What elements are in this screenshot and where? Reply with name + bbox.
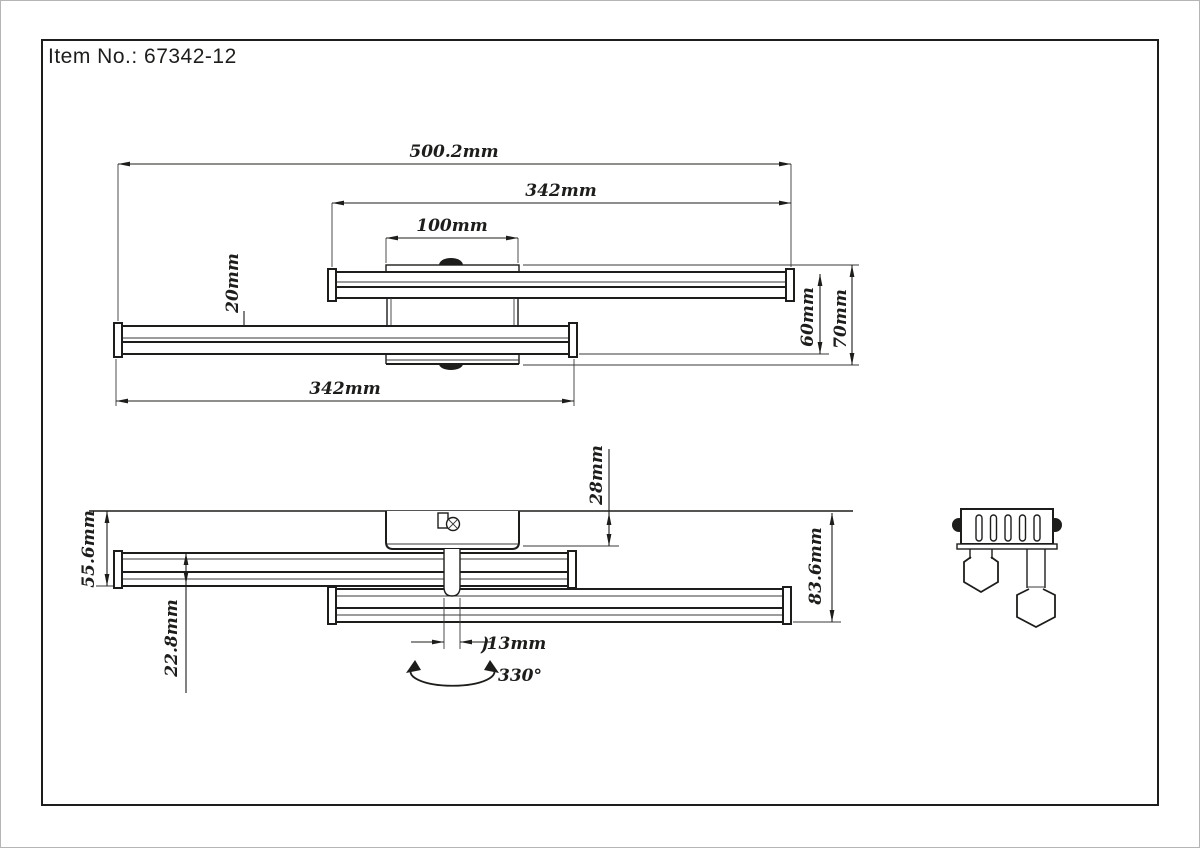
dim-lower-bar-length: 342mm bbox=[309, 379, 380, 399]
top-view: 500.2mm 342mm 100mm 20mm 60mm 70mm 342mm bbox=[114, 142, 859, 406]
rotation-arrow-left bbox=[406, 660, 421, 673]
end-view bbox=[952, 509, 1062, 627]
side-view: 55.6mm 22.8mm 28mm 83.6mm ⦘13mm bbox=[79, 445, 853, 693]
dim-height-to-first-bar: 55.6mm bbox=[79, 510, 99, 587]
drawing-page: Item No.: 67342-12 bbox=[0, 0, 1200, 848]
dim-upper-bar-length: 342mm bbox=[525, 181, 596, 201]
dim-swivel-angle: 330° bbox=[498, 666, 542, 686]
dim-bar-profile-height: 22.8mm bbox=[162, 599, 182, 677]
dim-overall-width: 500.2mm bbox=[409, 142, 498, 162]
dim-canopy-drop: 28mm bbox=[587, 445, 607, 506]
dim-total-drop: 83.6mm bbox=[806, 527, 826, 605]
dim-canopy-width: 100mm bbox=[416, 216, 487, 236]
dim-offset-depth: 60mm bbox=[798, 287, 818, 347]
dim-bar-depth: 20mm bbox=[223, 253, 243, 314]
dim-stem-diameter: ⦘13mm bbox=[480, 634, 546, 654]
technical-drawing: 500.2mm 342mm 100mm 20mm 60mm 70mm 342mm bbox=[1, 1, 1200, 848]
rotation-arrow-right bbox=[484, 660, 499, 673]
dim-total-depth: 70mm bbox=[831, 289, 851, 349]
